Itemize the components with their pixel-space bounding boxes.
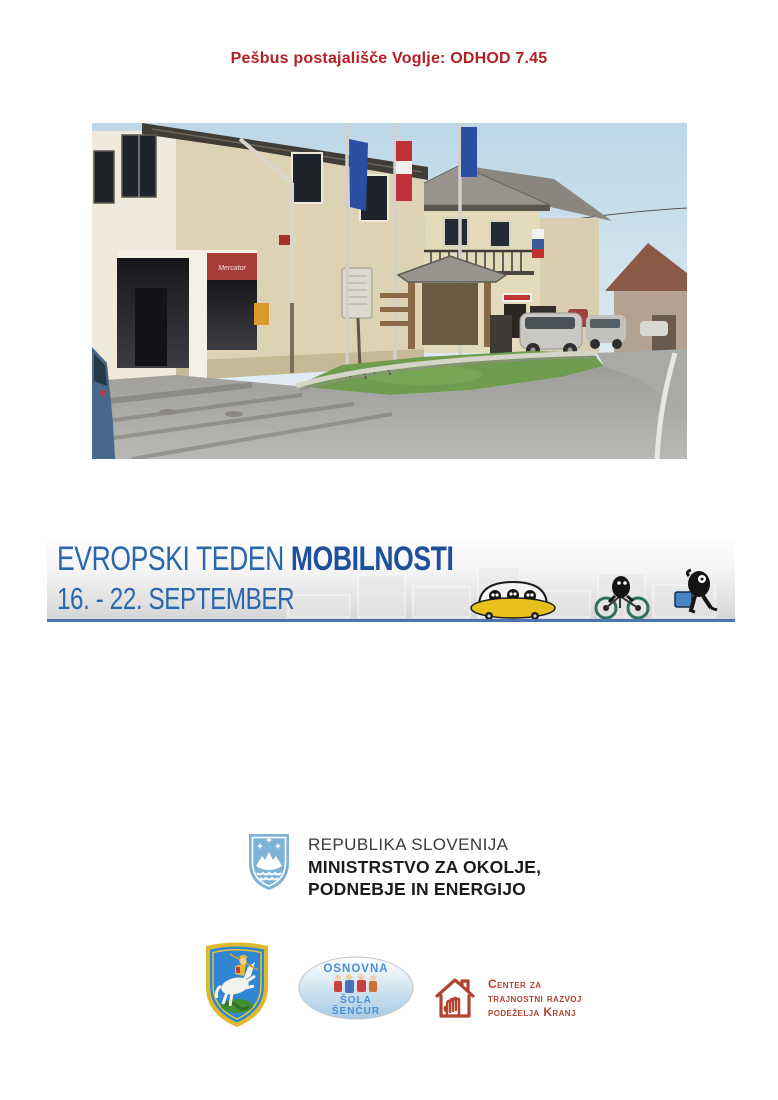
school-line3: ŠENČUR [332,1004,380,1017]
sencur-coat-of-arms [202,940,272,1032]
ctrp-line1: Center za [488,977,582,991]
fire-station-sign [504,295,530,300]
pedestrian-icon [669,568,721,618]
ctrp-text: Center za trajnostni razvoj podeželja Kr… [488,977,582,1019]
shop-building: Mercator [92,123,428,383]
school-line2: ŠOLA [340,993,372,1006]
document-page: Pešbus postajališče Voglje: ODHOD 7.45 [0,0,778,1100]
blue-flag [461,127,477,177]
white-car [640,321,668,336]
school-line1: OSNOVNA [323,963,388,975]
school-oval-graphic: OSNOVNA ŠOLA ŠENČUR [297,955,415,1021]
ministry-line3: PODNEBJE IN ENERGIJO [308,878,541,900]
school-logo: OSNOVNA ŠOLA ŠENČUR [297,955,415,1026]
house-hand-icon [432,974,478,1022]
slovenian-flag [532,229,544,258]
ministry-line2: MINISTRSTVO ZA OKOLJE, [308,856,541,878]
municipality-logo [202,940,272,1037]
ctrp-line3: podeželja Kranj [488,1005,582,1019]
dome-car-icon [467,576,559,620]
page-title: Pešbus postajališče Voglje: ODHOD 7.45 [0,50,778,68]
banner-underline [47,619,735,622]
shop-sign-text: Mercator [218,265,246,272]
banner-subtitle: 16. - 22. SEPTEMBER [57,581,453,617]
village-scene-graphic: Mercator [92,123,687,459]
red-white-flag [396,141,412,201]
ministry-logo: REPUBLIKA SLOVENIJA MINISTRSTVO ZA OKOLJ… [246,831,541,900]
banner-text: EVROPSKI TEDEN MOBILNOSTI 16. - 22. SEPT… [57,540,453,617]
banner-title-bold: MOBILNOSTI [291,540,454,578]
eu-flag [349,139,368,211]
ministry-text: REPUBLIKA SLOVENIJA MINISTRSTVO ZA OKOLJ… [308,831,541,900]
ctrp-logo: Center za trajnostni razvoj podeželja Kr… [432,974,582,1022]
banner-title: EVROPSKI TEDEN MOBILNOSTI [57,540,453,579]
ctrp-line2: trajnostni razvoj [488,991,582,1005]
ministry-line1: REPUBLIKA SLOVENIJA [308,834,541,856]
cyclist-icon [593,574,651,620]
yellow-box [254,303,269,325]
mobility-week-banner: EVROPSKI TEDEN MOBILNOSTI 16. - 22. SEPT… [47,538,735,622]
slovenia-coat-of-arms [246,831,292,893]
banner-title-light: EVROPSKI TEDEN [57,540,291,578]
bus-stop-photo: Mercator [92,123,687,459]
